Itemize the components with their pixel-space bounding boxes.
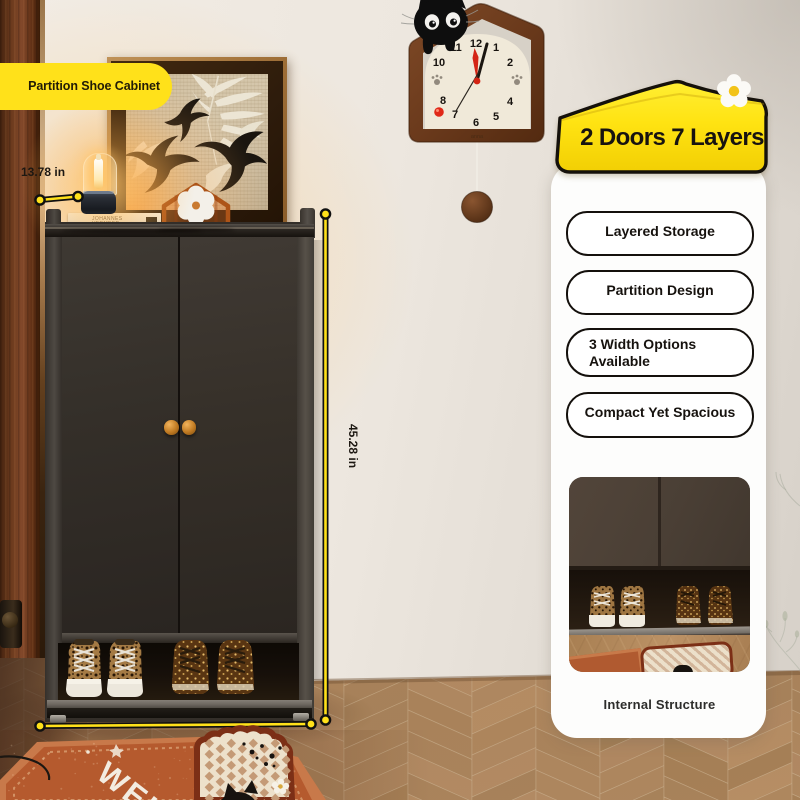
svg-text:10: 10 [433,57,445,69]
svg-text:4: 4 [507,96,514,108]
svg-text:8: 8 [440,95,446,107]
svg-text:12: 12 [470,38,482,50]
svg-text:6: 6 [473,117,479,129]
svg-text:anna: anna [471,134,484,140]
svg-text:5: 5 [493,111,499,123]
svg-text:7: 7 [452,109,458,121]
svg-text:2: 2 [507,57,513,69]
svg-text:1: 1 [493,42,499,54]
